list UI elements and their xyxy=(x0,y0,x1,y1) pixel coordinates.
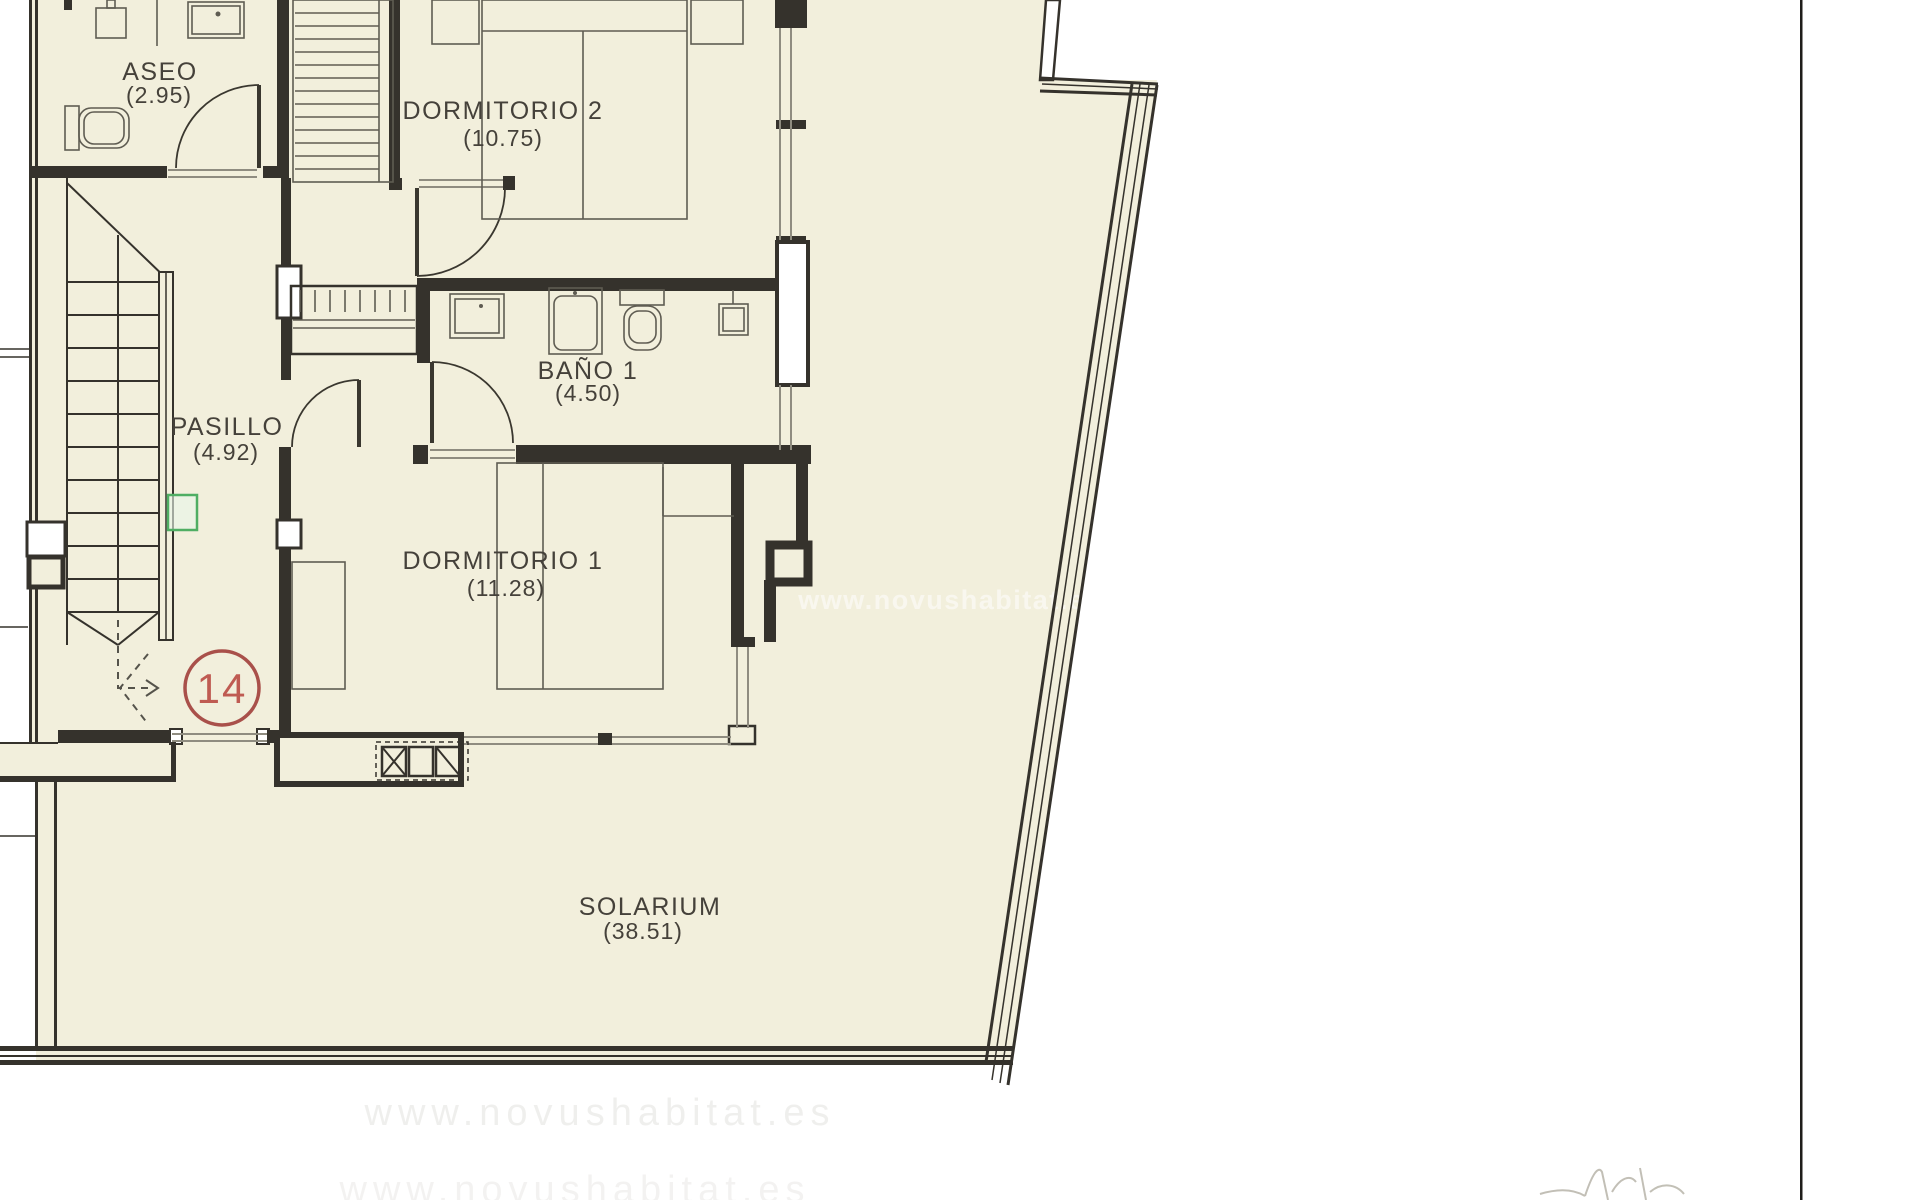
unit-number: 14 xyxy=(197,665,248,712)
label-pasillo: PASILLO xyxy=(171,413,284,441)
label-solarium: SOLARIUM xyxy=(579,893,722,921)
floor-plan-page: www.novushabitat.es xyxy=(0,0,1920,1200)
ghost-watermark: www.novushabitat.es www.novushabitat.es xyxy=(339,1092,836,1200)
area-bano-1: (4.50) xyxy=(555,380,621,406)
floor-plan: www.novushabitat.es xyxy=(0,0,1920,1200)
area-dormitorio-2: (10.75) xyxy=(463,125,543,151)
area-dormitorio-1: (11.28) xyxy=(467,575,545,601)
label-dormitorio-1: DORMITORIO 1 xyxy=(403,547,604,575)
svg-text:www.novushabitat.es: www.novushabitat.es xyxy=(364,1092,836,1134)
electrical-panel xyxy=(168,495,197,530)
area-solarium: (38.51) xyxy=(603,918,683,944)
label-dormitorio-2: DORMITORIO 2 xyxy=(403,97,604,125)
svg-text:www.novushabitat.es: www.novushabitat.es xyxy=(339,1169,811,1200)
sheet-frame-line xyxy=(1800,0,1803,1200)
area-pasillo: (4.92) xyxy=(193,439,259,465)
corner-sketch xyxy=(1540,1168,1684,1200)
area-aseo: (2.95) xyxy=(126,82,192,108)
installations-box xyxy=(277,735,468,784)
